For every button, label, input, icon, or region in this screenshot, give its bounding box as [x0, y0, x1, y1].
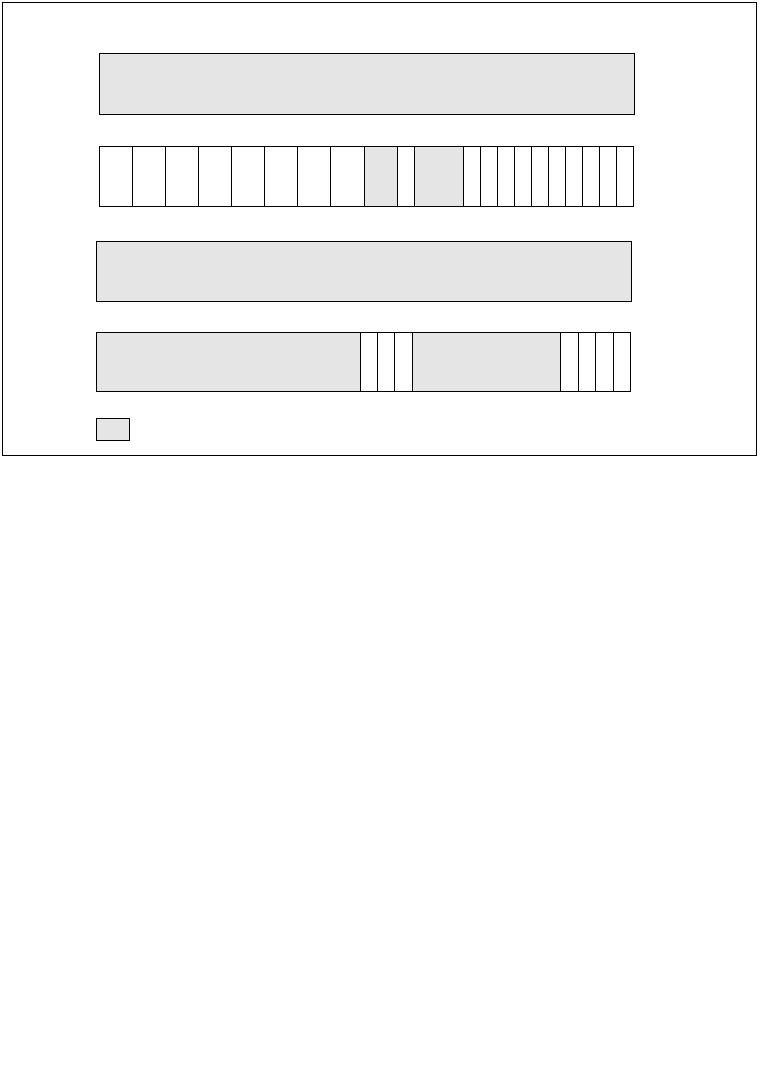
field-cell [265, 147, 298, 206]
field-bar [96, 332, 631, 392]
field-cell [515, 147, 532, 206]
field-cell [298, 147, 331, 206]
middle-shaded-box [96, 241, 632, 302]
shaded-field-cell [365, 147, 398, 206]
field-cell [464, 147, 481, 206]
field-cell [378, 333, 395, 391]
field-cell [549, 147, 566, 206]
field-cell [600, 147, 617, 206]
field-cell [232, 147, 265, 206]
field-cell [166, 147, 199, 206]
drawing-page [0, 0, 760, 1090]
bit-strip [99, 146, 634, 207]
shaded-field-cell [97, 333, 361, 391]
field-cell [199, 147, 232, 206]
field-cell [614, 333, 630, 391]
field-cell [583, 147, 600, 206]
shaded-field-cell [415, 147, 464, 206]
field-cell [331, 147, 364, 206]
field-cell [532, 147, 549, 206]
shaded-field-cell [413, 333, 562, 391]
field-cell [481, 147, 498, 206]
field-cell [579, 333, 596, 391]
field-cell [617, 147, 633, 206]
drawing-border-frame [2, 2, 757, 456]
field-cell [398, 147, 415, 206]
field-cell [100, 147, 133, 206]
field-cell [498, 147, 515, 206]
field-cell [596, 333, 613, 391]
field-cell [361, 333, 378, 391]
field-cell [561, 333, 578, 391]
legend-swatch [96, 418, 130, 441]
field-cell [566, 147, 583, 206]
field-cell [395, 333, 412, 391]
field-cell [133, 147, 166, 206]
top-shaded-box [99, 53, 635, 115]
